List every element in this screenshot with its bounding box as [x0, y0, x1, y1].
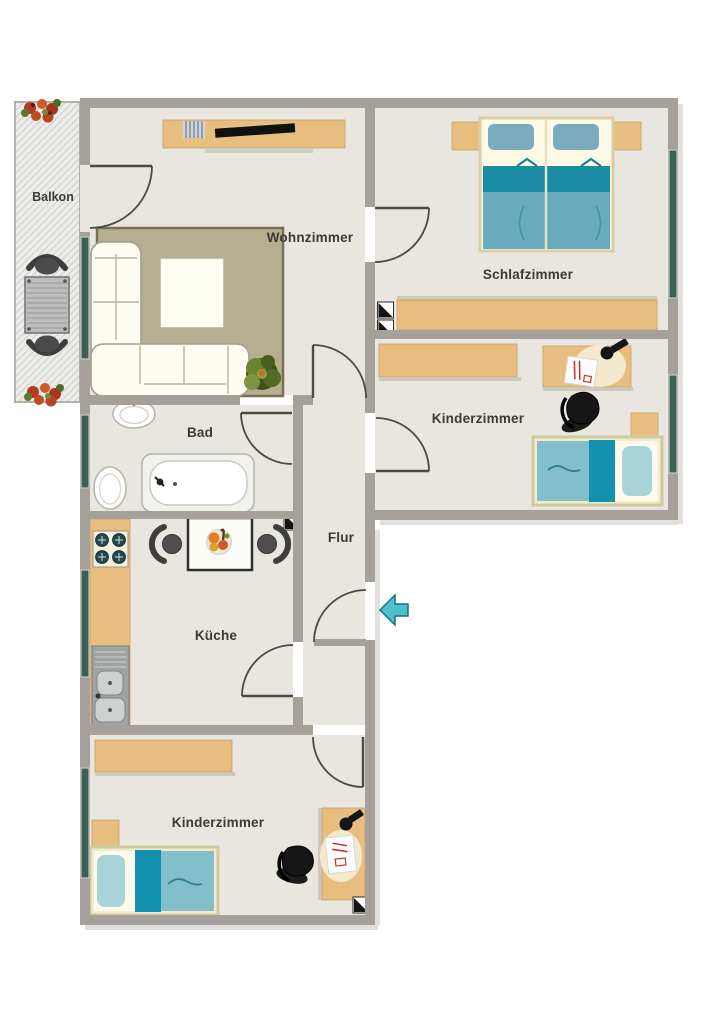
bathroom-label: Bad [187, 425, 213, 440]
wall-hall-right-upper [365, 473, 375, 582]
hallway-floor [303, 395, 365, 725]
wall-living-bath-left [80, 395, 240, 405]
balcony: Balkon [15, 99, 80, 407]
kids2-wardrobe [95, 740, 232, 772]
wall-left-upper [80, 98, 90, 165]
balcony-table [25, 277, 69, 333]
balcony-label: Balkon [32, 190, 74, 204]
kids-room-right-label: Kinderzimmer [432, 411, 525, 426]
bedroom-wardrobe [397, 300, 657, 330]
wall-living-bedroom-upper [365, 98, 375, 207]
living-room-label: Wohnzimmer [267, 230, 354, 245]
floor-plan-drawing: Balkon Wohnzimmer [0, 0, 724, 1024]
entrance-arrow-icon [380, 595, 408, 625]
sideboard-shadow [205, 148, 313, 153]
nightstand-right [613, 122, 641, 150]
kitchen-sink-icon [92, 646, 129, 726]
kids-room-right-window [669, 375, 677, 473]
kids2-wardrobe-shadow [95, 772, 235, 776]
toilet-icon [94, 467, 126, 509]
wall-top [80, 98, 678, 108]
stereo-icon [183, 121, 205, 138]
shaft-symbol [378, 302, 394, 318]
wall-bedroom-kidsroom [375, 330, 668, 339]
double-bed [480, 118, 613, 251]
stove-icon [93, 531, 128, 567]
kitchen-window [81, 570, 89, 677]
bedroom-window [669, 150, 677, 298]
hallway-label: Flur [328, 530, 355, 545]
lamp-head-icon [601, 347, 614, 360]
balcony-floor [15, 102, 80, 402]
nightstand-left [452, 122, 480, 150]
floor-plan-canvas: Balkon Wohnzimmer [0, 0, 724, 1024]
bathroom-window [81, 415, 89, 488]
kids2-nightstand [92, 820, 119, 847]
living-room-window [81, 237, 89, 359]
kids-room-bottom-label: Kinderzimmer [172, 815, 265, 830]
bathtub-icon [142, 454, 254, 512]
desk-with-lamp-2 [318, 808, 365, 900]
wall-kidsroom-bottom [365, 510, 678, 520]
kitchen-label: Küche [195, 628, 238, 643]
wall-bath-kitchen [90, 511, 303, 519]
balcony-door-threshold [80, 165, 90, 232]
bedroom-label: Schlafzimmer [483, 267, 574, 282]
lamp-head-icon [340, 818, 353, 831]
wall-living-bedroom-lower [365, 262, 375, 413]
single-bed [533, 437, 662, 505]
dining-table [188, 518, 252, 570]
single-bed-2 [90, 847, 218, 915]
wall-living-post [367, 395, 375, 405]
kids-wardrobe [379, 344, 517, 377]
kids-wardrobe-shadow [379, 377, 521, 381]
wall-kitchen-kids [80, 725, 313, 735]
coffee-table [160, 258, 224, 328]
wall-hall-right-lower [365, 640, 375, 925]
kids-room-bottom-window [81, 768, 89, 878]
wall-bottom [80, 915, 375, 925]
desk-with-lamp [543, 341, 633, 391]
